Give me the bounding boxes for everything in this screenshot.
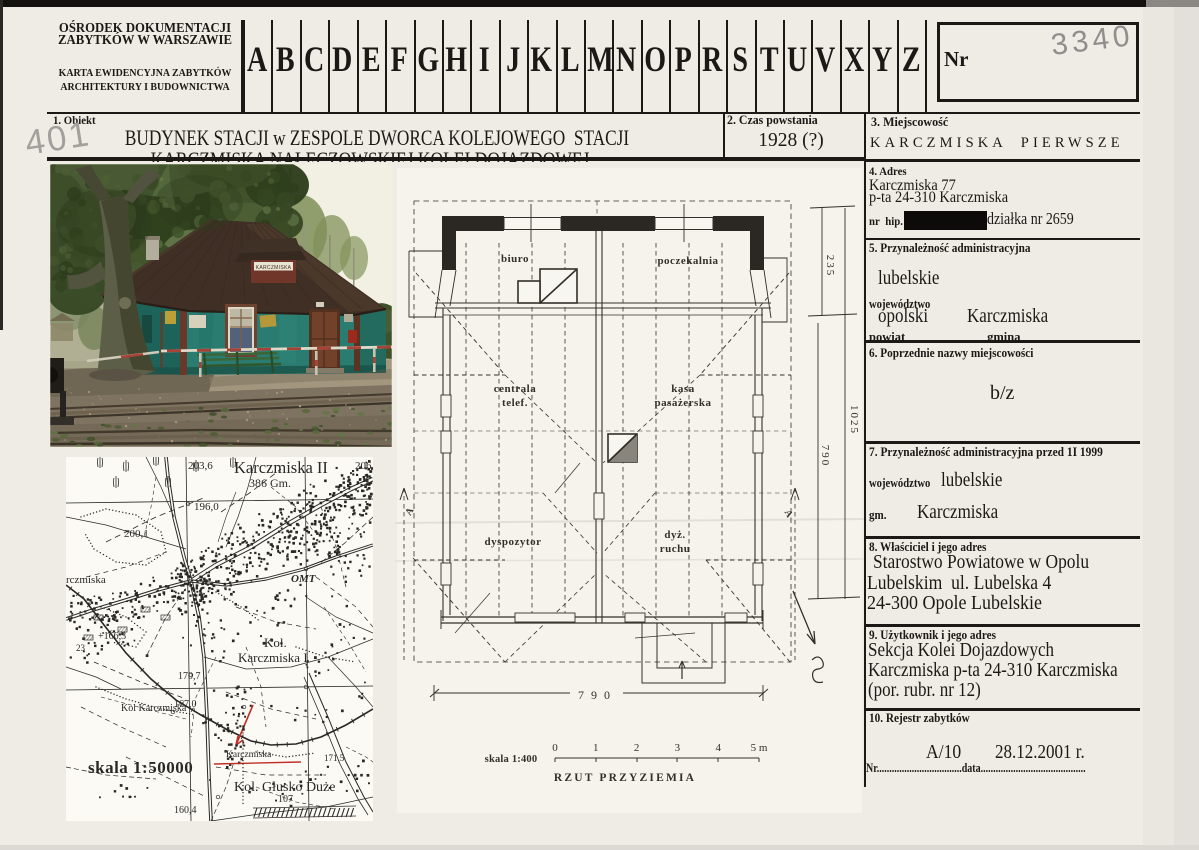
svg-text:RZUT PRZYZIEMIA: RZUT PRZYZIEMIA <box>554 772 696 784</box>
svg-text:dyż.: dyż. <box>664 529 685 541</box>
svg-text:OMT: OMT <box>291 573 317 585</box>
svg-text:ruchu: ruchu <box>660 543 691 555</box>
svg-text:2: 2 <box>634 742 640 754</box>
svg-text:4: 4 <box>715 742 721 754</box>
svg-text:kasa: kasa <box>671 383 694 395</box>
svg-text:centrala: centrala <box>494 383 536 395</box>
svg-text:3: 3 <box>675 742 681 754</box>
svg-text:5 m: 5 m <box>751 742 768 754</box>
svg-text:Kol. Głusko Duże: Kol. Głusko Duże <box>234 780 336 795</box>
svg-text:rczmiska: rczmiska <box>66 574 106 586</box>
svg-text:107: 107 <box>278 794 293 805</box>
svg-text:235: 235 <box>824 255 836 278</box>
svg-text:7 9 0: 7 9 0 <box>578 688 612 702</box>
svg-text:+166,3: +166,3 <box>98 631 126 642</box>
svg-text:0: 0 <box>552 742 558 754</box>
svg-text:skala 1:50000: skala 1:50000 <box>88 758 193 777</box>
svg-text:386 Gm.: 386 Gm. <box>249 476 291 490</box>
svg-text:23: 23 <box>76 643 86 653</box>
svg-text:196,0: 196,0 <box>194 501 219 513</box>
svg-text:Karczmiska I: Karczmiska I <box>238 650 308 665</box>
svg-text:1025: 1025 <box>848 405 860 435</box>
svg-text:KARCZMISKA: KARCZMISKA <box>256 265 292 271</box>
svg-text:160,4: 160,4 <box>174 805 197 816</box>
svg-text:Karczmiska: Karczmiska <box>226 750 272 760</box>
svg-text:203,6: 203,6 <box>188 460 213 472</box>
svg-text:Karczmiska II: Karczmiska II <box>234 458 328 477</box>
svg-text:telef.: telef. <box>502 397 528 409</box>
svg-text:poczekalnia: poczekalnia <box>657 255 718 267</box>
svg-text:skala 1:400: skala 1:400 <box>485 754 538 765</box>
svg-text:790: 790 <box>819 445 831 468</box>
svg-text:pasażerska: pasażerska <box>655 397 712 409</box>
svg-text:171,5: 171,5 <box>324 753 345 763</box>
svg-text:1: 1 <box>593 742 599 754</box>
svg-text:Kol.: Kol. <box>264 635 287 650</box>
svg-text:170,7: 170,7 <box>178 671 201 682</box>
svg-text:Kol Karczmiska: Kol Karczmiska <box>121 703 187 714</box>
svg-text:biuro: biuro <box>501 253 529 265</box>
svg-text:dyspozytor: dyspozytor <box>485 536 542 548</box>
svg-text:200,1: 200,1 <box>124 528 149 540</box>
svg-text:206: 206 <box>355 460 372 472</box>
